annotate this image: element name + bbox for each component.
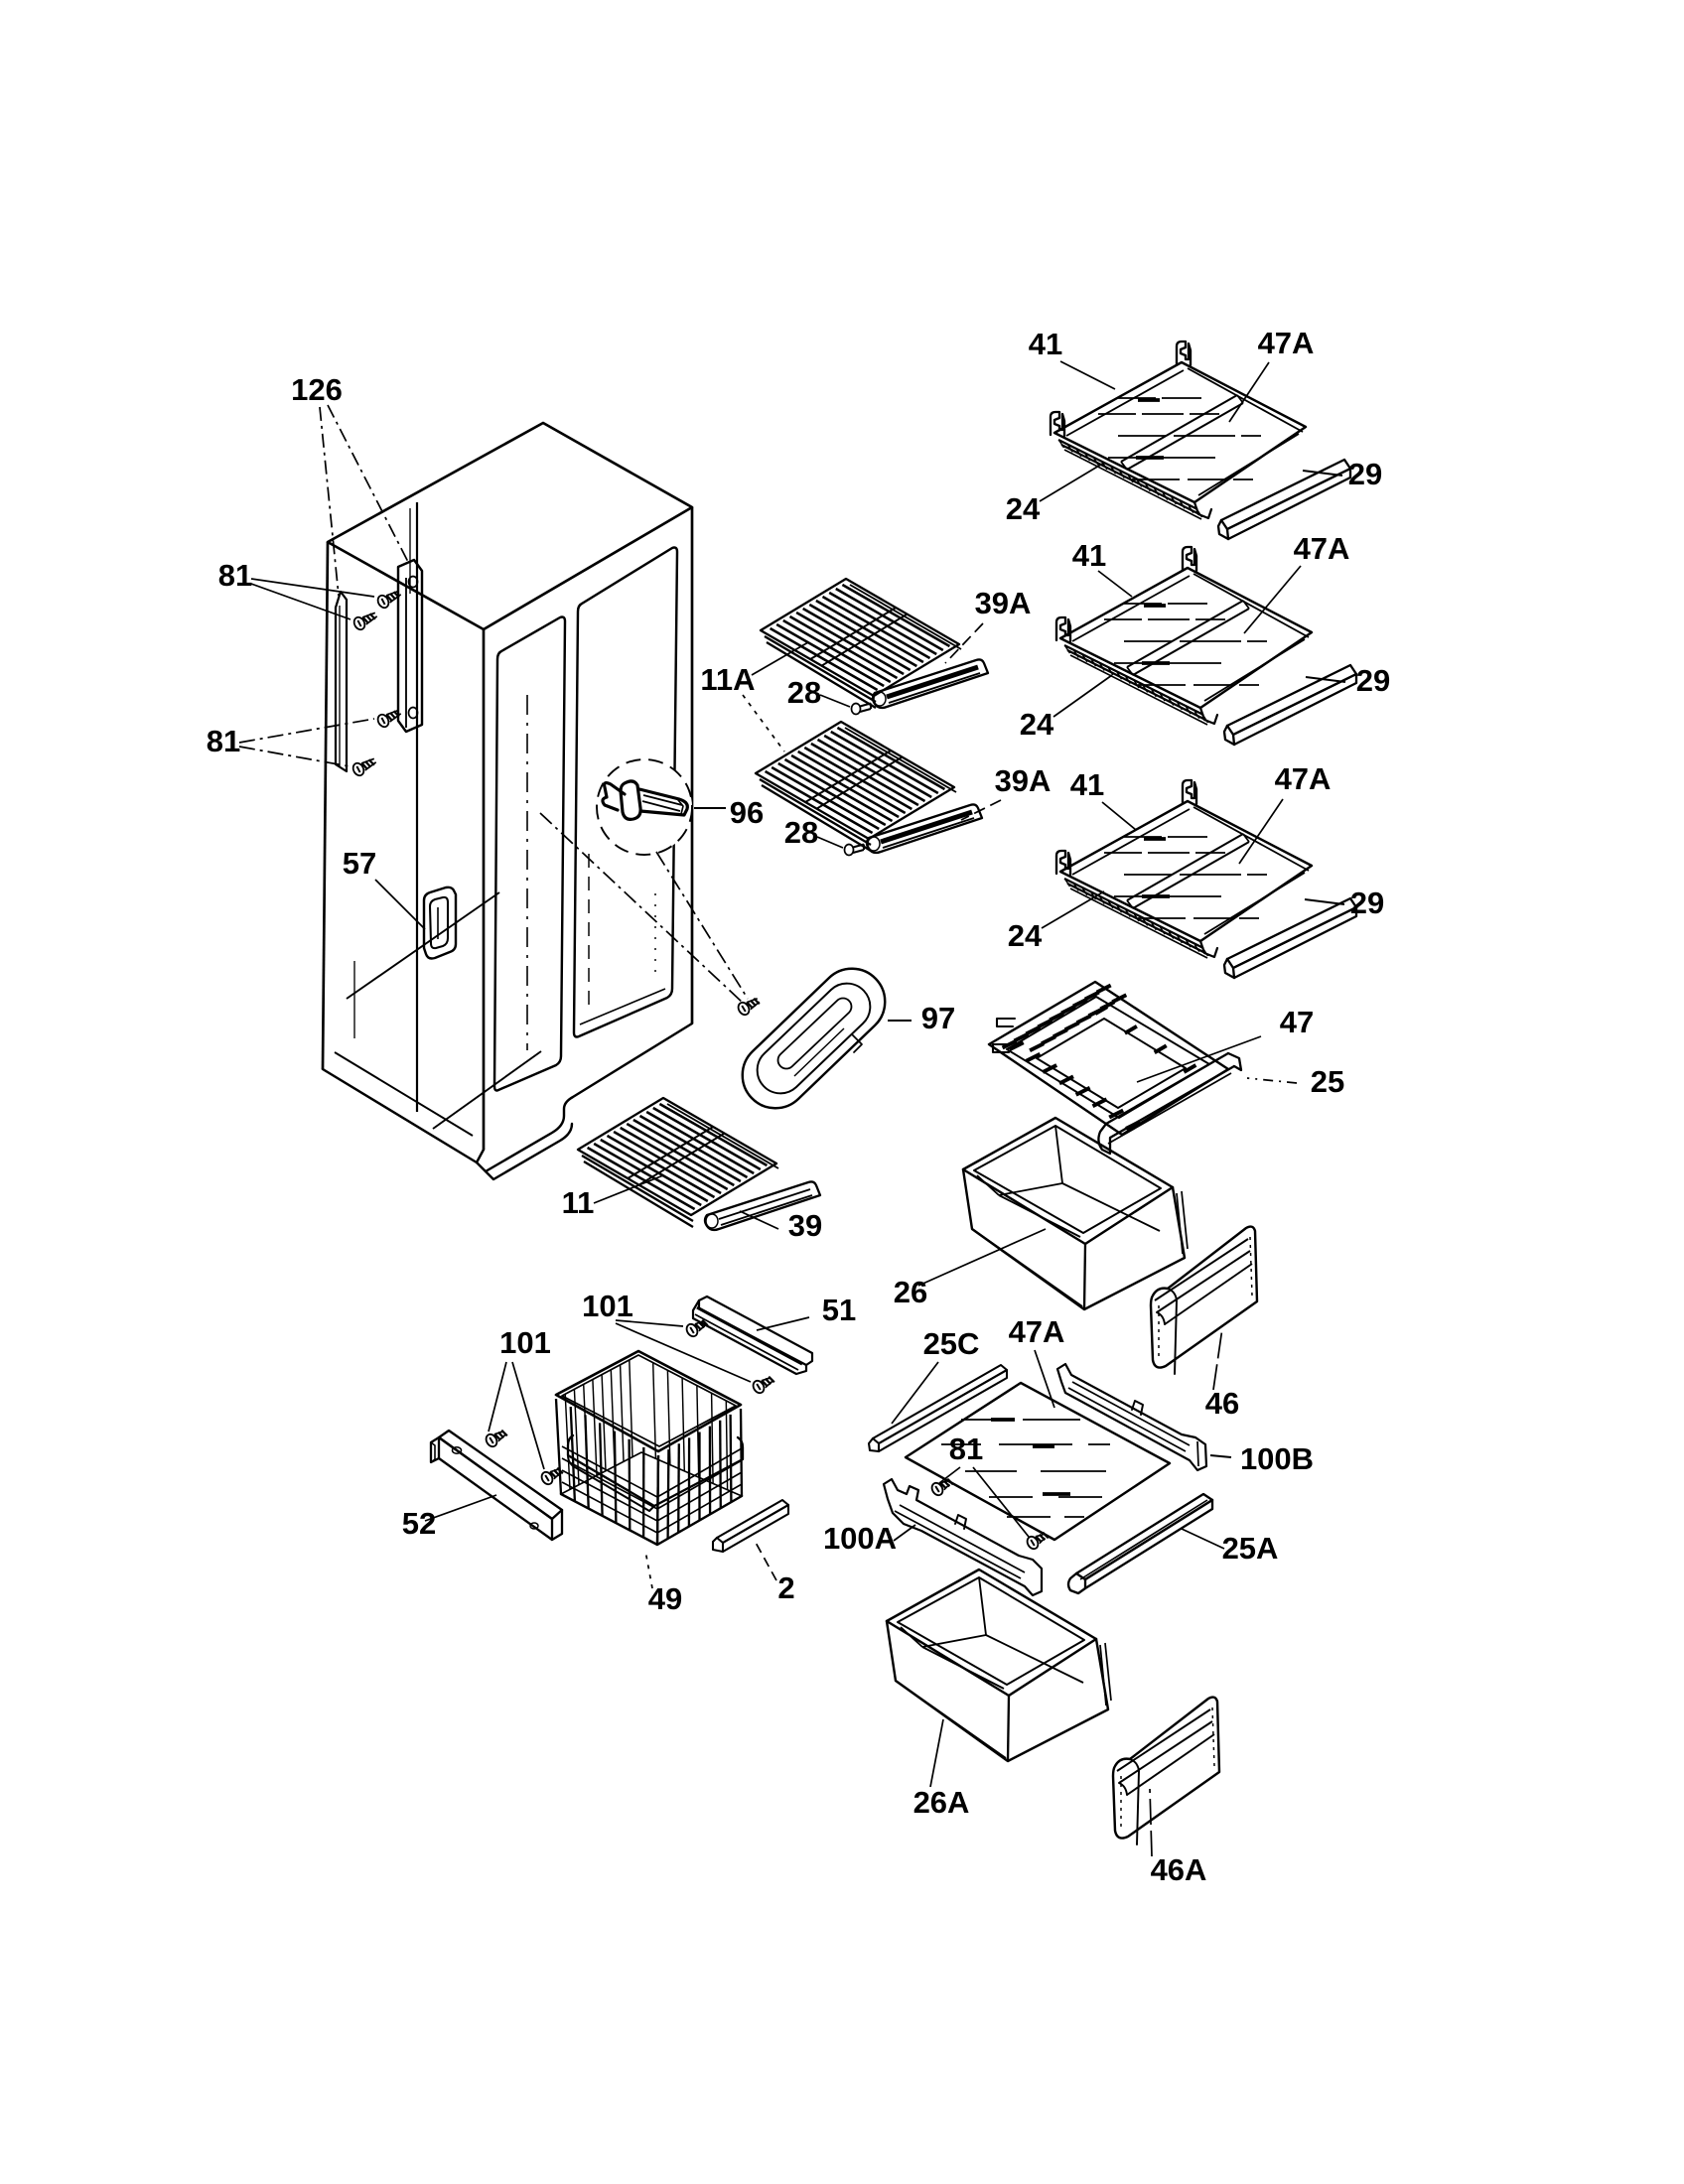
svg-text:41: 41 xyxy=(1072,538,1106,573)
svg-text:52: 52 xyxy=(402,1506,436,1541)
svg-text:100B: 100B xyxy=(1240,1441,1314,1476)
svg-text:47A: 47A xyxy=(1009,1314,1065,1349)
svg-text:39A: 39A xyxy=(975,586,1032,620)
svg-text:51: 51 xyxy=(822,1293,856,1327)
svg-text:2: 2 xyxy=(777,1570,794,1605)
svg-text:81: 81 xyxy=(207,724,240,758)
svg-text:28: 28 xyxy=(784,815,818,850)
svg-text:11: 11 xyxy=(562,1185,595,1220)
svg-text:46A: 46A xyxy=(1151,1852,1207,1887)
svg-text:24: 24 xyxy=(1006,491,1041,526)
svg-text:26: 26 xyxy=(894,1275,927,1309)
svg-text:57: 57 xyxy=(343,846,376,881)
svg-text:49: 49 xyxy=(648,1581,682,1616)
svg-text:11A: 11A xyxy=(700,662,755,697)
svg-text:81: 81 xyxy=(218,558,252,593)
svg-text:25A: 25A xyxy=(1222,1531,1279,1566)
svg-text:25: 25 xyxy=(1311,1064,1344,1099)
svg-text:41: 41 xyxy=(1029,327,1062,361)
svg-text:100A: 100A xyxy=(823,1521,897,1556)
svg-text:101: 101 xyxy=(499,1325,551,1360)
svg-text:29: 29 xyxy=(1350,886,1384,920)
svg-text:81: 81 xyxy=(949,1432,983,1466)
svg-text:25C: 25C xyxy=(923,1326,980,1361)
svg-text:24: 24 xyxy=(1020,707,1054,742)
svg-text:126: 126 xyxy=(291,372,343,407)
svg-text:39A: 39A xyxy=(995,763,1052,798)
svg-text:28: 28 xyxy=(787,675,821,710)
svg-text:47A: 47A xyxy=(1258,326,1315,360)
svg-text:39: 39 xyxy=(788,1208,822,1243)
svg-text:47A: 47A xyxy=(1294,531,1350,566)
svg-text:41: 41 xyxy=(1070,767,1104,802)
svg-text:101: 101 xyxy=(582,1289,633,1323)
svg-text:47A: 47A xyxy=(1275,761,1332,796)
svg-text:24: 24 xyxy=(1008,918,1043,953)
svg-text:29: 29 xyxy=(1348,457,1382,491)
svg-text:26A: 26A xyxy=(913,1785,970,1820)
svg-text:96: 96 xyxy=(730,795,764,830)
svg-text:46: 46 xyxy=(1205,1386,1239,1421)
svg-text:47: 47 xyxy=(1280,1005,1314,1039)
svg-text:97: 97 xyxy=(921,1001,955,1035)
svg-text:29: 29 xyxy=(1356,663,1390,698)
